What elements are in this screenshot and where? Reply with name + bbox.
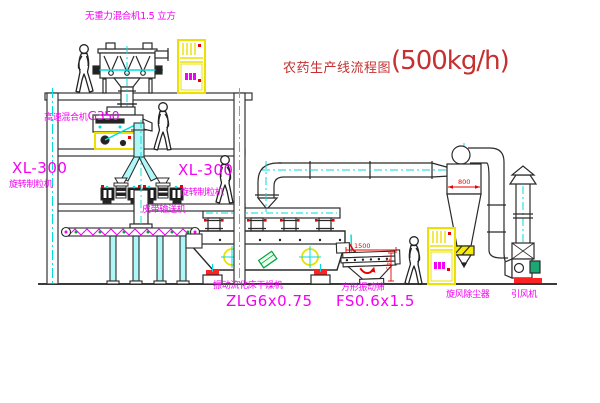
dimension-screen-height: 545	[385, 258, 392, 270]
pesticide-line-flow-diagram: 农药生产线流程图 (500kg/h) 无重力混合机1.5 立方 高速混合机 G3…	[0, 0, 600, 403]
worker-figure-floor2	[154, 103, 171, 150]
label-gravity-mixer: 无重力混合机1.5 立方	[85, 12, 176, 22]
control-cabinet-top	[178, 40, 205, 93]
label-fan: 引风机	[511, 291, 537, 300]
label-belt-conveyor: 皮带输送机	[142, 206, 186, 215]
label-cyclone: 旋风除尘器	[446, 291, 490, 300]
gravity-free-mixer	[93, 43, 168, 112]
dryer-exhaust-duct	[255, 161, 452, 212]
worker-figure-ground	[405, 237, 422, 284]
label-high-speed-mixer-model: G350	[88, 110, 120, 123]
induced-draft-fan	[505, 166, 542, 283]
belt-conveyor	[62, 228, 203, 285]
worker-figure-roof	[76, 45, 93, 92]
label-granulator-left-name: 旋转制粒机	[9, 181, 53, 190]
label-granulator-right-name: 旋转制粒机	[180, 189, 224, 198]
label-granulator-right-model: XL-300	[178, 163, 233, 178]
rotary-granulator-right	[143, 178, 183, 203]
dimension-cyclone: 800	[458, 179, 470, 186]
label-granulator-left-model: XL-300	[12, 161, 67, 176]
diagram-title: 农药生产线流程图 (500kg/h)	[283, 48, 509, 76]
control-cabinet-ground	[428, 228, 455, 284]
label-dryer-name: 振动流化床干燥机	[213, 282, 283, 291]
label-high-speed-mixer: 高速混合机 G350	[44, 110, 119, 123]
diagram-title-text: 农药生产线流程图	[283, 48, 391, 76]
diagram-title-capacity: (500kg/h)	[391, 48, 509, 74]
label-dryer-model: ZLG6x0.75	[226, 294, 313, 309]
label-screen-model: FS0.6x1.5	[336, 294, 415, 309]
label-high-speed-mixer-name: 高速混合机	[44, 114, 88, 123]
dimension-screen-length: 1500	[354, 243, 371, 250]
